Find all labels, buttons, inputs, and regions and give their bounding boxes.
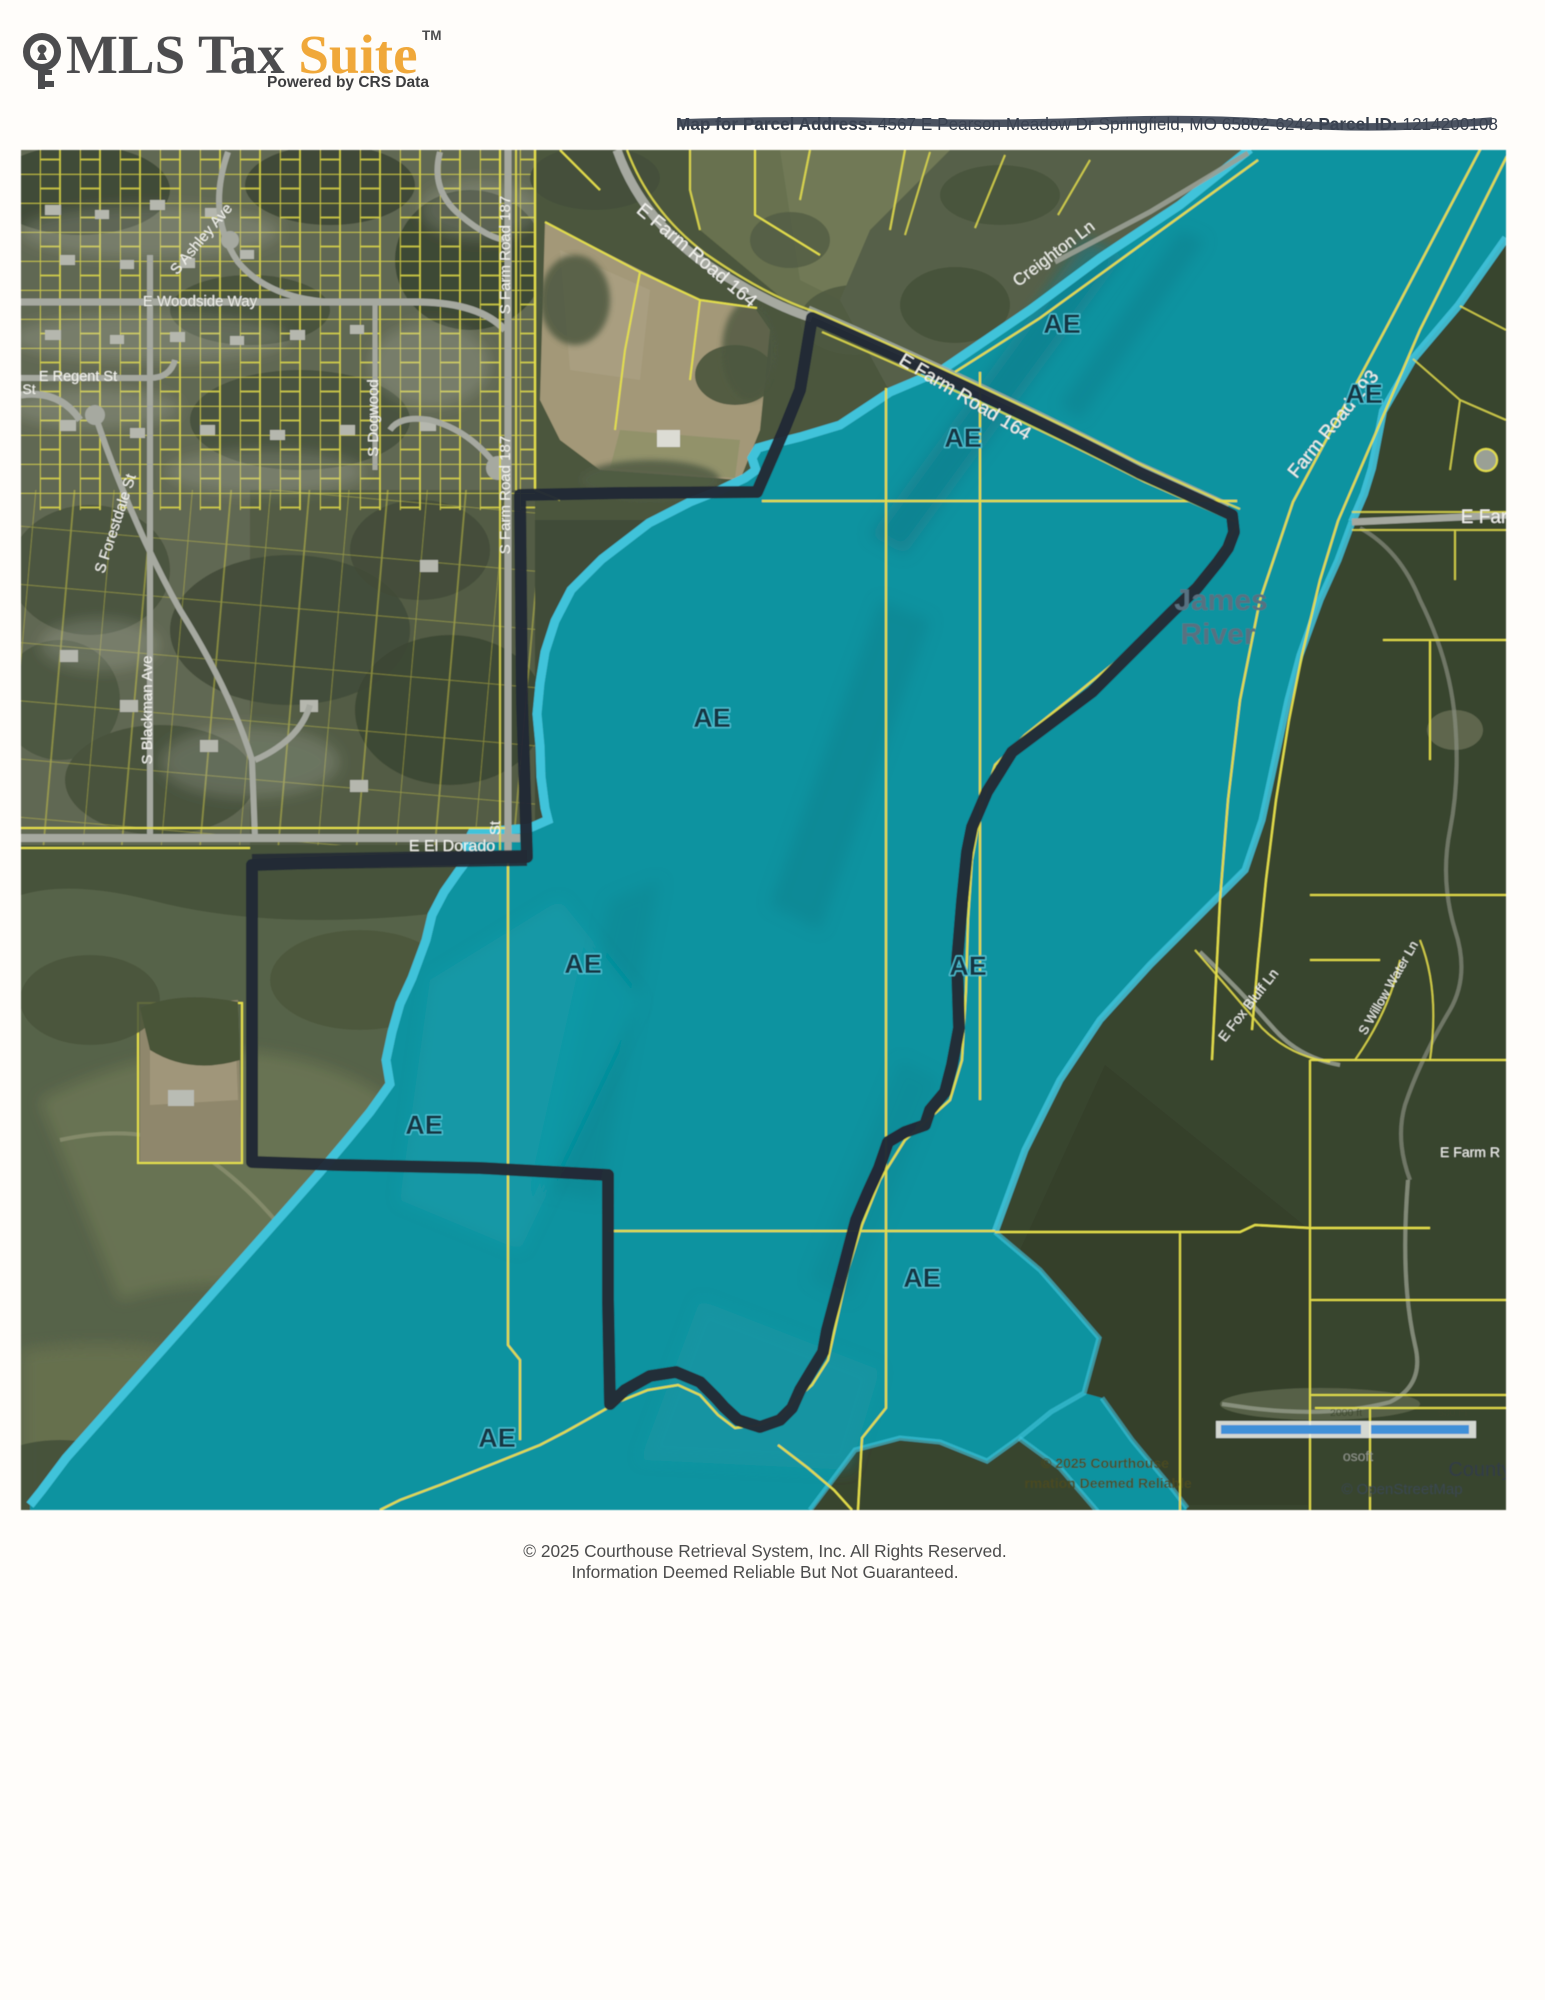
svg-text:osoft: osoft xyxy=(1343,1448,1373,1464)
svg-text:© 2025 Courthouse: © 2025 Courthouse xyxy=(1041,1455,1169,1471)
svg-text:© 2025 Courthouse Retrieval Sy: © 2025 Courthouse Retrieval System, Inc.… xyxy=(523,1541,1006,1561)
svg-text:500 m: 500 m xyxy=(1438,1407,1467,1419)
svg-text:Information Deemed Reliable Bu: Information Deemed Reliable But Not Guar… xyxy=(571,1562,958,1582)
svg-text:AE: AE xyxy=(903,1263,941,1293)
svg-text:© OpenStreetMap: © OpenStreetMap xyxy=(1341,1481,1462,1498)
svg-text:River: River xyxy=(1180,618,1255,651)
svg-text:E Regent St: E Regent St xyxy=(39,369,117,385)
svg-text:St: St xyxy=(487,820,504,835)
svg-text:AE: AE xyxy=(564,949,602,979)
svg-text:James: James xyxy=(1174,584,1267,617)
svg-text:AE: AE xyxy=(478,1423,516,1453)
svg-text:S Blackman Ave: S Blackman Ave xyxy=(139,656,156,765)
svg-text:County: County xyxy=(1448,1459,1511,1481)
svg-text:St: St xyxy=(22,381,35,397)
svg-text:2000 ft: 2000 ft xyxy=(1330,1407,1362,1419)
svg-text:S Dogwood: S Dogwood xyxy=(365,379,382,457)
svg-text:E Woodside Way: E Woodside Way xyxy=(143,293,258,310)
svg-text:S Farm Road 187: S Farm Road 187 xyxy=(497,436,514,554)
svg-text:TM: TM xyxy=(422,28,442,43)
svg-text:AE: AE xyxy=(1345,379,1383,409)
svg-text:E Far: E Far xyxy=(1461,507,1508,528)
svg-text:rmation Deemed Reliable: rmation Deemed Reliable xyxy=(1024,1475,1191,1491)
svg-text:E El Dorado: E El Dorado xyxy=(409,838,495,855)
svg-text:Powered by CRS Data: Powered by CRS Data xyxy=(267,74,429,91)
svg-text:E Farm R: E Farm R xyxy=(1440,1144,1500,1160)
svg-text:AE: AE xyxy=(1043,309,1081,339)
svg-text:AE: AE xyxy=(944,423,982,453)
svg-text:AE: AE xyxy=(949,951,987,981)
svg-text:AE: AE xyxy=(693,703,731,733)
svg-text:AE: AE xyxy=(405,1110,443,1140)
svg-text:S Farm Road 187: S Farm Road 187 xyxy=(497,196,514,314)
